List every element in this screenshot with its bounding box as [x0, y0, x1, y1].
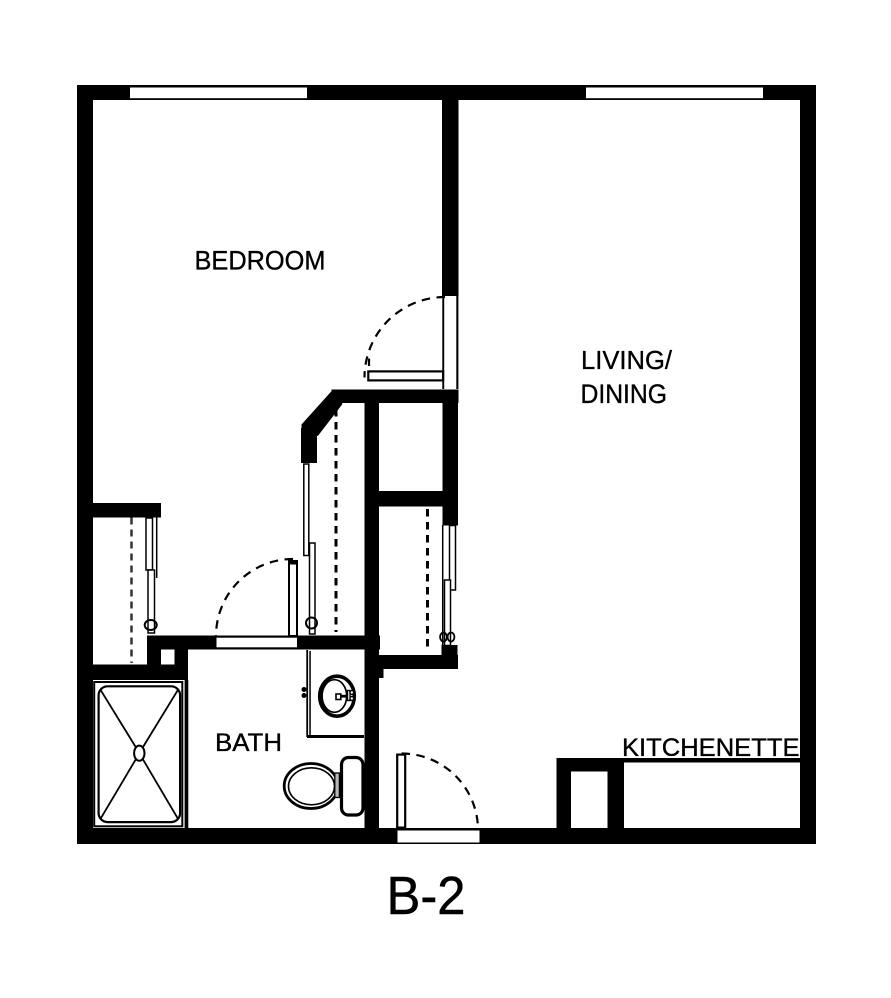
- svg-text:LIVING/: LIVING/: [581, 345, 673, 375]
- svg-text:BEDROOM: BEDROOM: [195, 245, 326, 275]
- svg-text:KITCHENETTE: KITCHENETTE: [622, 734, 800, 762]
- svg-text:BATH: BATH: [215, 729, 282, 757]
- svg-text:B-2: B-2: [387, 867, 466, 926]
- svg-text:DINING: DINING: [581, 379, 668, 409]
